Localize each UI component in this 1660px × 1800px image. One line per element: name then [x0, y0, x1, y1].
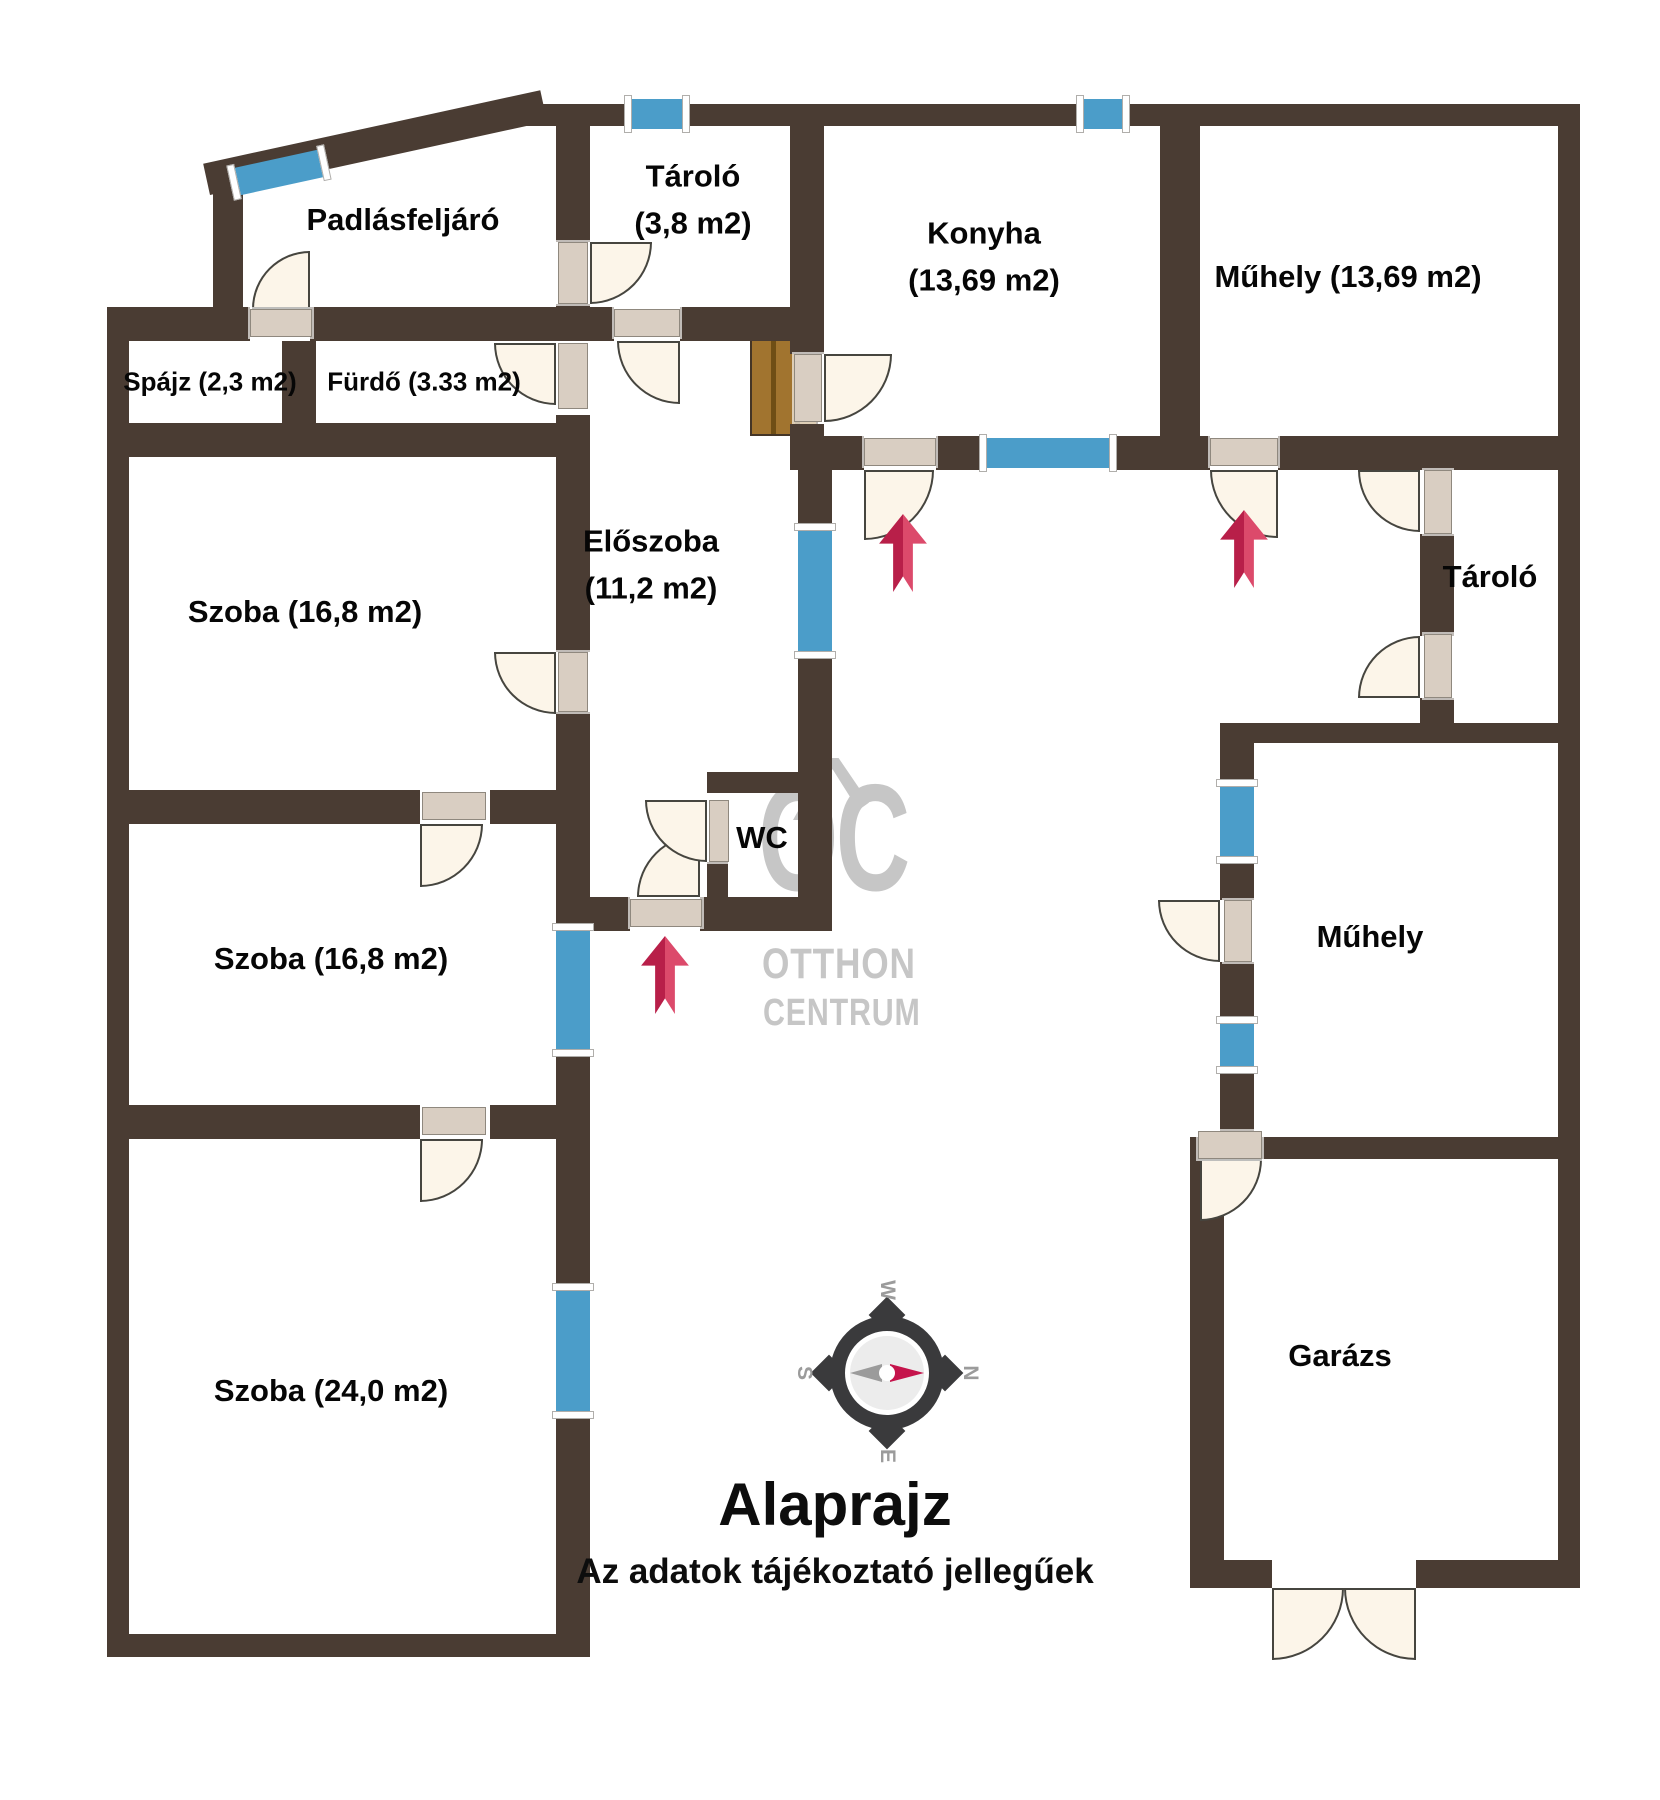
door-eloszoba-entrance-leaf — [630, 899, 702, 927]
door-szoba2-leaf — [422, 792, 486, 820]
wall-szoba2-szoba3-a — [107, 1105, 420, 1139]
door-spajz-padlas — [252, 251, 310, 309]
compass-letter-w: W — [875, 1280, 899, 1300]
wall-south-row-a — [790, 436, 864, 470]
door-stairs-konyha-leaf — [794, 354, 822, 422]
room-label-furdo: Fürdő (3.33 m2) — [327, 367, 521, 398]
wall-top-3 — [1126, 104, 1558, 126]
window-eloszoba — [798, 527, 832, 655]
room-label-konyha: Konyha (13,69 m2) — [908, 216, 1060, 299]
plan-subtitle: Az adatok tájékoztató jellegűek — [420, 1552, 1250, 1592]
door-szoba1 — [494, 652, 556, 714]
room-label-konyha-name: Konyha — [927, 216, 1041, 251]
watermark-text-centrum: CENTRUM — [763, 992, 921, 1035]
wall-south-row-b — [936, 436, 983, 470]
wall-spine-1 — [556, 126, 590, 242]
wall-spajz-bottom — [107, 423, 590, 457]
wall-bottom-left — [107, 1634, 590, 1657]
room-label-garazs: Garázs — [1288, 1338, 1391, 1374]
compass-letter-s: S — [792, 1366, 816, 1380]
wall-muhely-right-left-d — [1220, 1070, 1254, 1137]
room-label-eloszoba-name: Előszoba — [583, 524, 719, 559]
room-label-tarolo-top-name: Tároló — [646, 159, 741, 194]
wall-spajz-top-b — [310, 307, 556, 341]
door-muhely-top-entrance-leaf — [1210, 438, 1278, 466]
wall-garazs-top-b — [1262, 1137, 1580, 1159]
wall-tarolo38-bottom-b — [680, 307, 790, 341]
room-label-szoba2: Szoba (16,8 m2) — [214, 941, 448, 977]
wall-spine-3 — [556, 415, 590, 457]
wall-top-2 — [686, 104, 1080, 126]
door-tarolo38-eloszoba — [617, 341, 680, 404]
door-tarolo-right-upper — [1358, 470, 1420, 532]
wall-muhely-right-left-b — [1220, 860, 1254, 900]
wall-tarolo38-bottom-a — [590, 307, 614, 341]
door-szoba3-leaf — [422, 1107, 486, 1135]
wall-right-outer — [1558, 104, 1580, 1588]
room-label-eloszoba: Előszoba (11,2 m2) — [583, 524, 719, 607]
door-garazs-inner-leaf — [1198, 1131, 1262, 1159]
room-label-tarolo-top: Tároló (3,8 m2) — [634, 159, 751, 242]
room-label-padlasfeljaro: Padlásfeljáró — [307, 202, 500, 238]
window-konyha-south — [983, 438, 1113, 468]
wall-spine-2 — [556, 304, 590, 341]
compass-needle-tail — [850, 1364, 882, 1382]
window-szoba3 — [556, 1287, 590, 1415]
compass-needle-head — [890, 1364, 924, 1382]
entrance-arrow-eloszoba — [639, 936, 691, 1014]
window-muhely-right-2 — [1220, 1020, 1254, 1070]
wall-eloszoba-bottom-b — [700, 897, 832, 931]
window-szoba2 — [556, 927, 590, 1053]
wall-muhely-right-left-a — [1220, 743, 1254, 783]
wall-tarolo-right-left-b — [1420, 698, 1454, 723]
door-tarolo-right-lower — [1358, 636, 1420, 698]
door-garazs-inner — [1200, 1159, 1262, 1221]
door-padlas-tarolo — [590, 242, 652, 304]
room-label-konyha-area: (13,69 m2) — [908, 263, 1060, 299]
wall-top-1 — [515, 104, 628, 126]
door-tarolo-right-lower-leaf — [1424, 634, 1452, 698]
floor-plan: OC OTTHON CENTRUM — [0, 0, 1660, 1800]
compass-hub — [879, 1365, 895, 1381]
wall-szoba1-szoba2-a — [107, 790, 420, 824]
door-szoba1-leaf — [558, 652, 588, 712]
compass-rose — [812, 1298, 962, 1448]
room-label-spajz: Spájz (2,3 m2) — [123, 367, 296, 398]
door-konyha-entrance-leaf — [864, 438, 936, 466]
wall-wc-left — [707, 862, 728, 897]
room-label-muhely-top: Műhely (13,69 m2) — [1214, 259, 1481, 295]
wall-muhely-right-left-c — [1220, 962, 1254, 1020]
door-furdo-leaf — [558, 343, 588, 409]
room-label-szoba3: Szoba (24,0 m2) — [214, 1373, 448, 1409]
wall-spine-5 — [556, 712, 590, 927]
door-padlas-tarolo-leaf — [558, 242, 588, 304]
door-muhely-right — [1158, 900, 1220, 962]
wall-left-outer — [107, 307, 129, 1657]
room-label-eloszoba-area: (11,2 m2) — [583, 571, 719, 607]
door-garazs-gate-left-leaf — [1272, 1588, 1344, 1660]
window-tarolo-top — [628, 99, 686, 129]
door-spajz-padlas-leaf — [250, 309, 312, 337]
door-wc-leaf — [709, 800, 729, 862]
wall-south-row-d — [1278, 436, 1558, 470]
wall-spine-6 — [556, 1053, 590, 1287]
door-tarolo38-eloszoba-leaf — [614, 309, 680, 337]
window-muhely-right-1 — [1220, 783, 1254, 860]
room-label-tarolo-top-area: (3,8 m2) — [634, 206, 751, 242]
wall-spajz-top-a — [107, 307, 250, 341]
plan-title: Alaprajz — [420, 1470, 1250, 1539]
room-label-szoba1: Szoba (16,8 m2) — [188, 594, 422, 630]
wall-garazs-bottom-b — [1416, 1560, 1580, 1588]
wall-eloszoba-right-a — [798, 470, 832, 527]
watermark-text-otthon: OTTHON — [762, 940, 916, 989]
door-tarolo-right-upper-leaf — [1424, 470, 1452, 534]
wall-wc-top — [707, 772, 812, 793]
wall-konyha-muhely-divider — [1160, 126, 1200, 436]
door-muhely-right-leaf — [1224, 900, 1252, 962]
room-label-tarolo-right: Tároló — [1443, 559, 1538, 595]
wall-tarolo-right-bottom — [1220, 723, 1580, 743]
compass-letter-n: N — [958, 1365, 982, 1380]
door-stairs-konyha — [824, 354, 892, 422]
room-label-wc: WC — [736, 820, 788, 856]
room-label-muhely-right: Műhely — [1317, 919, 1424, 955]
door-garazs-gate-right-leaf — [1344, 1588, 1416, 1660]
door-szoba3 — [420, 1139, 483, 1202]
wall-konyha-left-a — [790, 126, 824, 354]
window-konyha-top — [1080, 99, 1126, 129]
wall-south-row-c — [1113, 436, 1210, 470]
compass-letter-e: E — [875, 1449, 899, 1463]
door-szoba2 — [420, 824, 483, 887]
